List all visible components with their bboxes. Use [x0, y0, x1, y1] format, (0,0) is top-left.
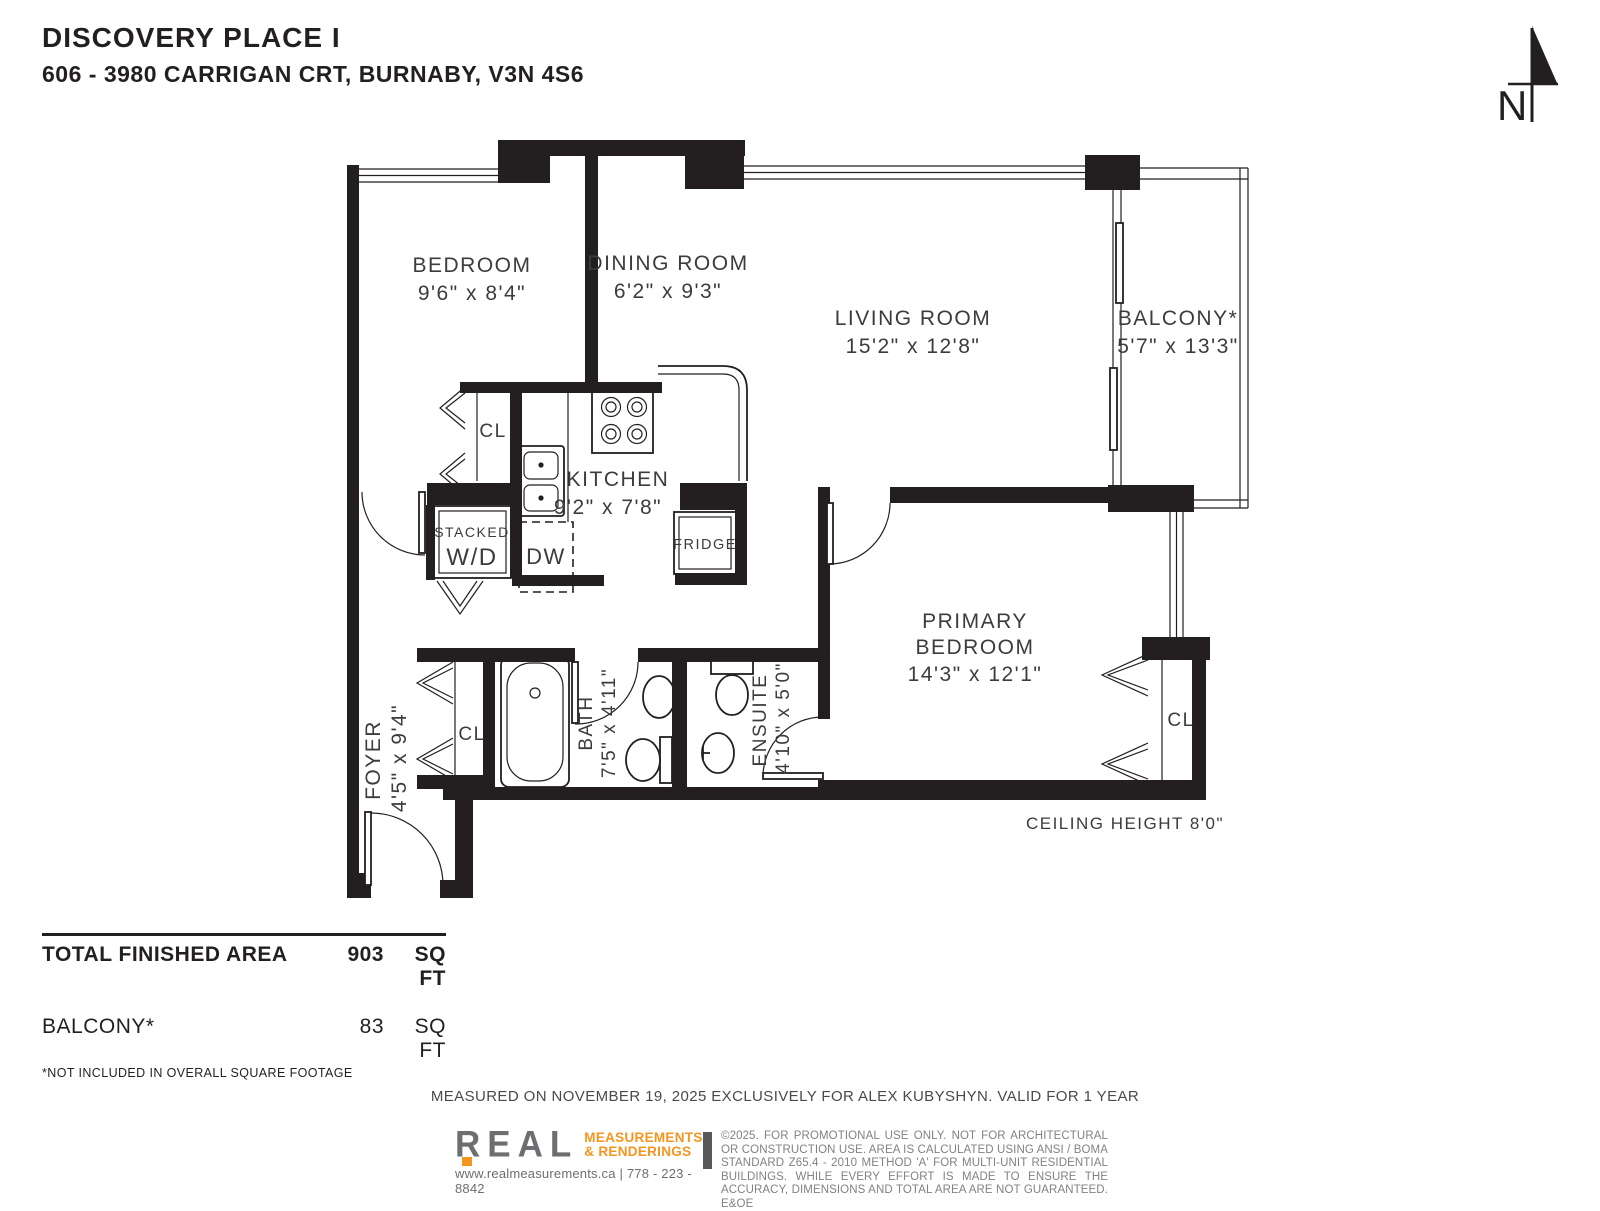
north-arrow: N [1483, 12, 1573, 134]
primary-closet-label: CL [1167, 710, 1194, 731]
primary-bedroom-label-1: PRIMARY [922, 610, 1028, 633]
laundry-closet-doors [437, 581, 483, 614]
property-address: 606 - 3980 CARRIGAN CRT, BURNABY, V3N 4S… [42, 61, 584, 88]
stove [592, 386, 653, 453]
area-summary: TOTAL FINISHED AREA 903 SQ FT BALCONY* 8… [42, 933, 446, 1080]
floor-plan: BEDROOM 9'6" x 8'4" DINING ROOM 6'2" x 9… [330, 130, 1270, 920]
bedroom-label: BEDROOM [412, 254, 531, 277]
balcony-dims: 5'7" x 13'3" [1117, 335, 1239, 358]
balcony-area-value: 83 [336, 1015, 384, 1039]
logo-contact: www.realmeasurements.ca | 778 - 223 - 88… [455, 1166, 697, 1196]
balcony-area-row: BALCONY* 83 SQ FT [42, 1015, 446, 1063]
balcony-footnote: *NOT INCLUDED IN OVERALL SQUARE FOOTAGE [42, 1066, 446, 1080]
dishwasher-label: DW [526, 544, 566, 569]
footer-divider [703, 1132, 712, 1169]
total-area-unit: SQ FT [384, 943, 446, 991]
total-area-label: TOTAL FINISHED AREA [42, 943, 336, 967]
bedroom-window [358, 169, 498, 182]
primary-bedroom-dims: 14'3" x 12'1" [908, 663, 1043, 686]
kitchen-dims: 9'2" x 7'8" [554, 496, 662, 519]
footer: REAL MEASUREMENTS & RENDERINGS www.realm… [455, 1130, 1108, 1211]
logo-tagline-2: & RENDERINGS [584, 1145, 702, 1159]
logo-tagline-1: MEASUREMENTS [584, 1131, 702, 1145]
bedroom-dims: 9'6" x 8'4" [418, 282, 526, 305]
primary-bedroom-label-2: BEDROOM [915, 636, 1034, 659]
page-title: DISCOVERY PLACE I [42, 22, 584, 54]
disclaimer-text: ©2025. FOR PROMOTIONAL USE ONLY. NOT FOR… [721, 1130, 1108, 1211]
logo-orange-square-icon [462, 1157, 472, 1166]
stacked-wd-label-1: STACKED [434, 524, 510, 540]
north-arrow-head [1532, 26, 1557, 83]
north-label: N [1497, 82, 1527, 129]
primary-bedroom-door [827, 503, 890, 564]
ceiling-height-note: CEILING HEIGHT 8'0" [1026, 814, 1224, 833]
foyer-dims: 4'5" x 9'4" [388, 704, 411, 812]
logo-wordmark: REAL [455, 1129, 578, 1161]
bathtub [501, 657, 569, 787]
total-area-value: 903 [336, 943, 384, 967]
ensuite-sink [702, 733, 734, 773]
balcony-area-label: BALCONY* [42, 1015, 336, 1039]
bedroom-closet-doors [440, 387, 477, 495]
bedroom-door [362, 492, 425, 555]
foyer-closet-label: CL [458, 724, 485, 745]
ensuite-toilet [711, 661, 753, 715]
living-room-window [744, 166, 1085, 179]
fridge-label: FRIDGE [673, 537, 737, 553]
stacked-wd-label-2: W/D [446, 544, 497, 571]
living-room-dims: 15'2" x 12'8" [846, 335, 981, 358]
kitchen-label: KITCHEN [567, 468, 670, 491]
ensuite-label: ENSUITE [750, 674, 771, 767]
foyer-label: FOYER [362, 720, 385, 800]
dining-room-dims: 6'2" x 9'3" [614, 280, 722, 303]
primary-closet-doors [1102, 654, 1162, 787]
bedroom-closet-label: CL [479, 421, 506, 442]
measured-statement: MEASURED ON NOVEMBER 19, 2025 EXCLUSIVEL… [0, 1088, 1570, 1105]
foyer-closet-doors [417, 662, 455, 780]
primary-bedroom-window [1170, 512, 1183, 637]
ensuite-dims: 4'10" x 5'0" [773, 662, 794, 774]
header: DISCOVERY PLACE I 606 - 3980 CARRIGAN CR… [42, 22, 584, 88]
bath-label: BATH [576, 695, 597, 750]
balcony-area-unit: SQ FT [384, 1015, 446, 1063]
entry-door [365, 812, 443, 885]
bath-toilet [626, 737, 672, 783]
dining-room-label: DINING ROOM [587, 252, 748, 275]
floorplan-page: { "header": { "title": "DISCOVERY PLACE … [0, 0, 1600, 1200]
company-logo: REAL MEASUREMENTS & RENDERINGS www.realm… [455, 1130, 697, 1196]
bath-dims: 7'5" x 4'11" [599, 668, 620, 778]
living-room-label: LIVING ROOM [835, 307, 992, 330]
total-area-row: TOTAL FINISHED AREA 903 SQ FT [42, 936, 446, 991]
balcony-label: BALCONY* [1118, 307, 1239, 330]
